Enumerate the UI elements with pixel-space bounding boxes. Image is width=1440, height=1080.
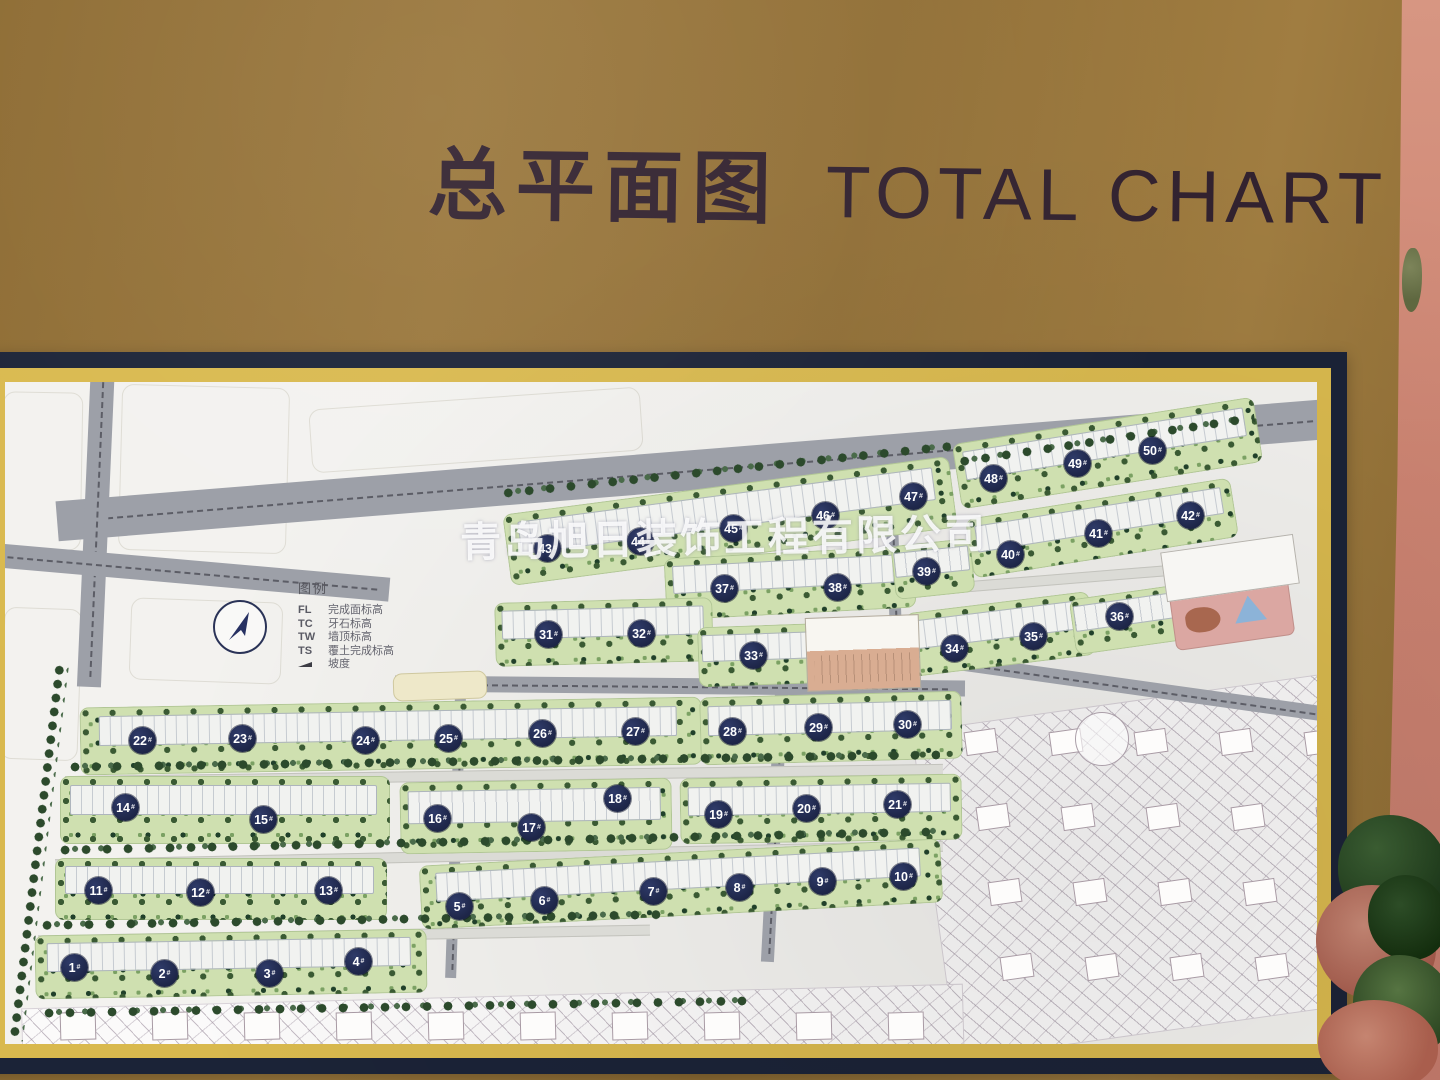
existing-house-outline (1133, 728, 1168, 756)
existing-house-outline (1072, 878, 1107, 906)
existing-house-outline (612, 1012, 649, 1041)
building-number-badge: 12# (187, 879, 214, 906)
building-number-badge: 5# (446, 893, 473, 920)
building-number-badge: 21# (884, 791, 911, 818)
existing-house-outline (1254, 953, 1289, 981)
residential-block (494, 597, 714, 667)
building-number-badge: 49# (1064, 450, 1091, 477)
legend-item-tc: TC 牙石标高 (298, 618, 394, 632)
building-number-badge: 1# (61, 954, 88, 981)
building-number-badge: 4# (345, 948, 372, 975)
building-number-badge: 33# (740, 642, 767, 669)
roundabout-circle (1075, 712, 1129, 766)
building-number-badge: 28# (719, 718, 746, 745)
existing-house-outline (1169, 953, 1204, 981)
building-number-badge: 14# (112, 794, 139, 821)
building-number-badge: 20# (793, 795, 820, 822)
existing-house-outline (1218, 728, 1253, 756)
building-number-badge: 19# (705, 801, 732, 828)
building-number-badge: 41# (1085, 520, 1112, 547)
building-number-badge: 26# (529, 720, 556, 747)
building-number-badge: 42# (1177, 502, 1204, 529)
legend-item-slope: 坡度 (298, 658, 394, 672)
building-number-badge: 36# (1106, 603, 1133, 630)
existing-house-outline (963, 728, 998, 756)
map-legend: 图例 FL 完成面标高 TC 牙石标高 TW 墙顶标高 TS (298, 578, 394, 672)
building-number-badge: 24# (352, 727, 379, 754)
building-number-badge: 40# (997, 541, 1024, 568)
building-number-badge: 3# (256, 960, 283, 987)
building-number-badge: 37# (711, 575, 738, 602)
map-panel-inner-frame: 图例 FL 完成面标高 TC 牙石标高 TW 墙顶标高 TS (0, 368, 1331, 1058)
existing-house-outline (1230, 803, 1265, 831)
existing-house-outline (1242, 878, 1277, 906)
title-english: TOTAL CHART (825, 152, 1388, 240)
legend-item-tw: TW 墙顶标高 (298, 631, 394, 645)
legend-title: 图例 (298, 578, 394, 597)
building-number-badge: 16# (424, 805, 451, 832)
building-number-badge: 39# (913, 558, 940, 585)
building-number-badge: 23# (229, 725, 256, 752)
north-arrow-icon (213, 600, 267, 654)
residential-block (905, 591, 1096, 677)
building-number-badge: 10# (890, 863, 917, 890)
existing-house-outline (987, 878, 1022, 906)
company-watermark: 青岛旭日装饰工程有限公司 (460, 499, 989, 568)
site-plan-map: 图例 FL 完成面标高 TC 牙石标高 TW 墙顶标高 TS (5, 382, 1317, 1044)
legend-item-fl: FL 完成面标高 (298, 604, 394, 618)
slope-icon (298, 662, 312, 667)
building-number-badge: 2# (151, 960, 178, 987)
shrub-foliage (1308, 815, 1440, 1080)
existing-house-outline (1084, 953, 1119, 981)
title-chinese: 总平面图 (427, 140, 780, 233)
building-number-badge: 22# (129, 727, 156, 754)
commercial-center-building (805, 614, 922, 692)
building-number-badge: 31# (535, 621, 562, 648)
existing-house-outline (1303, 728, 1317, 756)
existing-house-outline (704, 1012, 741, 1041)
building-number-badge: 32# (628, 620, 655, 647)
building-number-badge: 35# (1020, 623, 1047, 650)
building-number-badge: 25# (435, 725, 462, 752)
existing-house-outline (336, 1012, 373, 1041)
building-number-badge: 18# (604, 785, 631, 812)
existing-house-outline (1060, 803, 1095, 831)
building-number-badge: 15# (250, 806, 277, 833)
existing-house-outline (975, 803, 1010, 831)
building-number-badge: 7# (640, 878, 667, 905)
existing-house-outline (999, 953, 1034, 981)
legend-item-ts: TS 覆土完成标高 (298, 645, 394, 659)
residential-block (60, 776, 390, 844)
map-panel-frame: 图例 FL 完成面标高 TC 牙石标高 TW 墙顶标高 TS (0, 352, 1347, 1074)
building-number-badge: 27# (622, 718, 649, 745)
existing-house-outline (244, 1012, 281, 1041)
entrance-plaza (393, 670, 488, 701)
building-number-badge: 17# (518, 814, 545, 841)
building-number-badge: 6# (531, 887, 558, 914)
building-number-badge: 38# (824, 574, 851, 601)
existing-house-outline (428, 1012, 465, 1041)
building-number-badge: 13# (315, 877, 342, 904)
page-title: 总平面图TOTAL CHART (427, 120, 1389, 247)
shrub-leaf-cluster (1368, 875, 1440, 960)
building-number-badge: 50# (1139, 437, 1166, 464)
existing-house-outline (1145, 803, 1180, 831)
existing-house-outline (1157, 878, 1192, 906)
building-number-badge: 29# (805, 714, 832, 741)
building-number-badge: 11# (85, 877, 112, 904)
existing-house-outline (888, 1012, 925, 1041)
building-number-badge: 9# (809, 868, 836, 895)
building-number-badge: 30# (894, 711, 921, 738)
existing-house-outline (796, 1012, 833, 1041)
building-number-badge: 48# (980, 465, 1007, 492)
signboard-photo: 总平面图TOTAL CHART 图例 FL 完成面标高 TC (0, 0, 1440, 1080)
building-number-badge: 8# (726, 874, 753, 901)
existing-house-outline (520, 1012, 557, 1041)
building-number-badge: 34# (941, 635, 968, 662)
